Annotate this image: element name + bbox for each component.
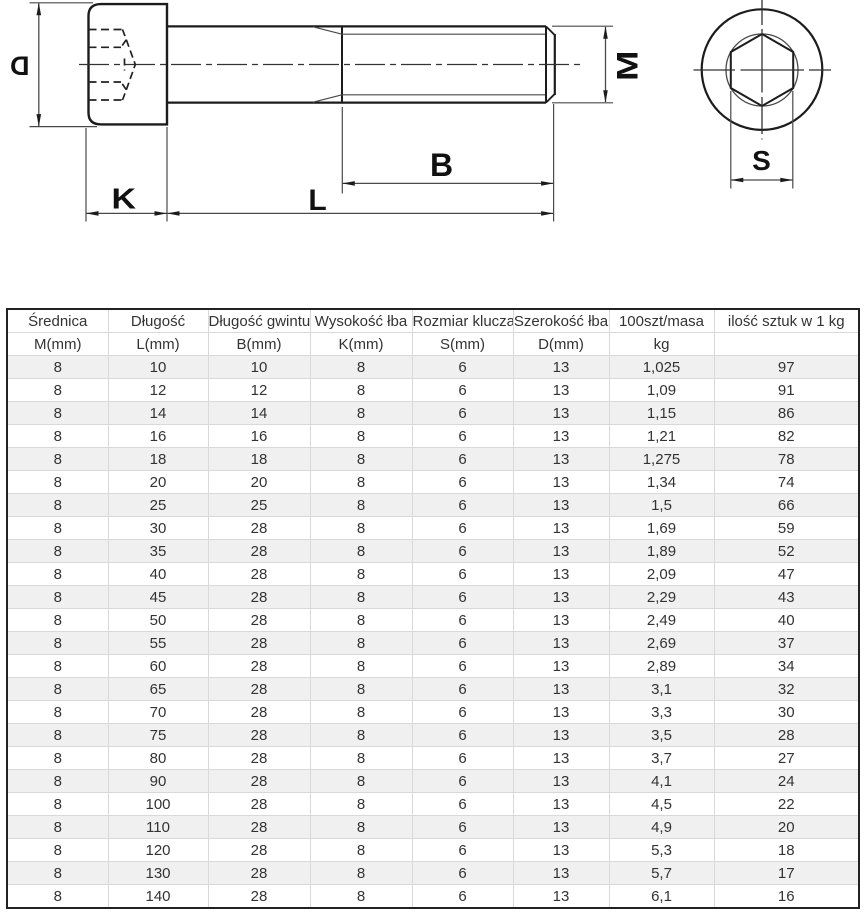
svg-text:L: L: [308, 184, 326, 217]
svg-text:S: S: [752, 145, 771, 176]
svg-text:M: M: [611, 51, 644, 81]
svg-text:D: D: [10, 51, 30, 81]
svg-text:B: B: [430, 147, 453, 183]
svg-text:K: K: [112, 184, 137, 216]
